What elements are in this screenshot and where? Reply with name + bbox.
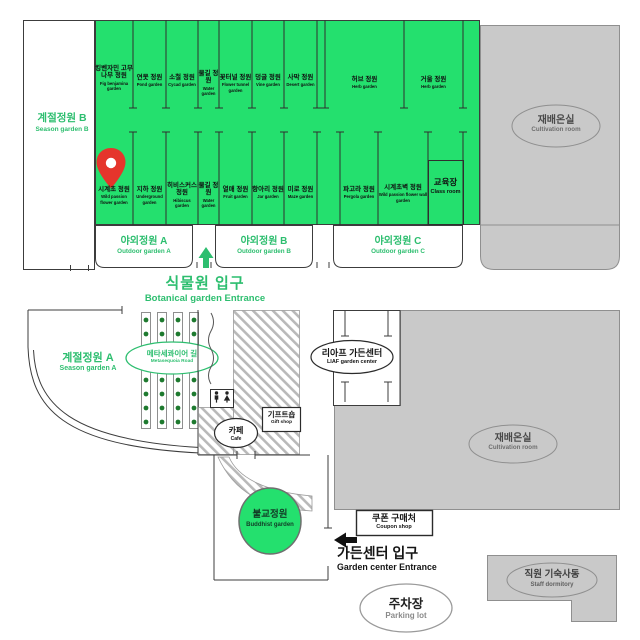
outdoor-garden-a-label: 야외정원 A Outdoor garden A (95, 236, 193, 255)
garden-cell-ko: 연못 정원 (133, 74, 166, 81)
outdoor-garden-b-label: 야외정원 B Outdoor garden B (215, 236, 313, 255)
tree-dot (144, 406, 149, 411)
garden-cell-label: 미로 정원Maze garden (284, 186, 317, 200)
garden-center-entrance-en: Garden center Entrance (337, 563, 487, 573)
garden-cell-label: 허브 정원Herb garden (325, 76, 404, 90)
tree-dot (160, 318, 165, 323)
garden-cell-label: 소철 정원Cycad garden (166, 74, 198, 88)
garden-cell-label: 파고라 정원Pergola garden (340, 186, 378, 200)
staff-dormitory-ko: 직원 기숙사동 (507, 570, 597, 581)
season-garden-a-label: 계절정원 A Season garden A (38, 352, 138, 373)
season-garden-b-ko: 계절정원 B (25, 113, 99, 125)
tree-dot (192, 406, 197, 411)
buddhist-garden-ko: 불교정원 (239, 510, 301, 521)
cultivation-room-mid-ko: 재배온실 (453, 433, 573, 444)
garden-center-entrance-ko: 가든센터 입구 (337, 546, 487, 562)
tree-dot (192, 318, 197, 323)
garden-cell-en: Class room (428, 189, 463, 196)
botanical-garden-entrance-label: 식물원 입구 Botanical garden Entrance (105, 276, 305, 304)
garden-cell-ko: 거울 정원 (404, 76, 463, 83)
garden-cell-ko: 열매 정원 (219, 186, 252, 193)
botanical-garden-entrance-en: Botanical garden Entrance (105, 294, 305, 305)
season-garden-a-ko: 계절정원 A (38, 352, 138, 364)
garden-cell-en: Pergola garden (340, 194, 378, 199)
tree-dot (192, 392, 197, 397)
tree-dot (176, 406, 181, 411)
garden-cell-label: 항아리 정원Jar garden (252, 186, 284, 200)
outdoor-garden-c-en: Outdoor garden C (333, 248, 463, 255)
garden-cell-ko: 허브 정원 (325, 76, 404, 83)
coupon-shop-ko: 쿠폰 구매처 (356, 513, 432, 523)
tree-dot (192, 420, 197, 425)
outdoor-garden-b-en: Outdoor garden B (215, 248, 313, 255)
garden-cell-ko: 미로 정원 (284, 186, 317, 193)
garden-cell-label: 물길 정원Water garden (198, 70, 219, 96)
metasequoia-road-en: Metasequoia Road (126, 359, 218, 364)
garden-center-entrance-label: 가든센터 입구 Garden center Entrance (337, 546, 487, 573)
tree-dot (160, 332, 165, 337)
garden-cell-ko: 소철 정원 (166, 74, 198, 81)
outdoor-garden-a-ko: 야외정원 A (95, 236, 193, 247)
garden-cell-en: Flower tunnel garden (219, 82, 252, 93)
garden-cell-en: Wild passion flower garden (95, 194, 133, 205)
outdoor-garden-c-ko: 야외정원 C (333, 236, 463, 247)
garden-cell-en: Cycad garden (166, 82, 198, 87)
garden-cell-en: Water garden (198, 198, 219, 209)
tree-dot (144, 378, 149, 383)
garden-cell-label: 히비스커스 정원Hibiscus garden (166, 182, 198, 208)
garden-cell-label: 교육장Class room (428, 178, 463, 196)
staff-dormitory-building (488, 556, 617, 622)
garden-cell-ko: 물길 정원 (198, 182, 219, 197)
liaf-garden-center-label: 리아프 가든센터 LIAF garden center (312, 348, 392, 365)
garden-cell-label: 연못 정원Pond garden (133, 74, 166, 88)
garden-cell-ko: 히비스커스 정원 (166, 182, 198, 197)
map-drawing-layer (0, 0, 640, 640)
coupon-shop-label: 쿠폰 구매처 Coupon shop (356, 513, 432, 530)
garden-cell-ko: 시계초벽 정원 (378, 184, 428, 191)
tree-dot (176, 392, 181, 397)
garden-cell-label: 사막 정원Desert garden (284, 74, 317, 88)
garden-cell-label: 덩굴 정원Vine garden (252, 74, 284, 88)
garden-cell-en: Fruit garden (219, 194, 252, 199)
staff-dormitory-label: 직원 기숙사동 Staff dormitory (507, 570, 597, 588)
metasequoia-road-label: 메타세콰이어 길 Metasequoia Road (126, 350, 218, 365)
garden-cell-en: Vine garden (252, 82, 284, 87)
cultivation-room-top-label: 재배온실 Cultivation room (506, 115, 606, 134)
garden-cell-label: 시계초 정원Wild passion flower garden (95, 186, 133, 205)
season-garden-a-en: Season garden A (38, 365, 138, 373)
gift-shop-label: 기프트숍 Gift shop (262, 411, 301, 426)
season-garden-a-walls (28, 306, 122, 347)
garden-cell-ko: 시계초 정원 (95, 186, 133, 193)
coupon-shop-en: Coupon shop (356, 524, 432, 530)
cultivation-room-top-building (481, 26, 620, 270)
gift-shop-en: Gift shop (262, 420, 301, 425)
cafe-en: Cafe (214, 437, 258, 443)
garden-cell-en: Underground garden (133, 194, 166, 205)
garden-cell-label: 거울 정원Herb garden (404, 76, 463, 90)
garden-cell-en: Jar garden (252, 194, 284, 199)
liaf-garden-center-ko: 리아프 가든센터 (312, 348, 392, 358)
metasequoia-road-ko: 메타세콰이어 길 (126, 350, 218, 358)
season-garden-b-en: Season garden B (25, 126, 99, 133)
parking-lot-label: 주차장 Parking lot (361, 597, 451, 621)
garden-cell-ko: 교육장 (428, 178, 463, 188)
buddhist-garden-en: Buddhist garden (239, 522, 301, 529)
cafe-ko: 카페 (214, 427, 258, 436)
season-garden-b-area (24, 21, 95, 270)
cultivation-room-mid-en: Cultivation room (453, 445, 573, 452)
garden-cell-label: 지하 정원Underground garden (133, 186, 166, 205)
garden-cell-label: 열매 정원Fruit garden (219, 186, 252, 200)
tree-dot (192, 332, 197, 337)
garden-cell-en: Herb garden (404, 84, 463, 89)
garden-cell-ko: 꽃터널 정원 (219, 74, 252, 81)
parking-lot-en: Parking lot (361, 612, 451, 621)
cultivation-room-top-ko: 재배온실 (506, 115, 606, 126)
garden-cell-ko: 지하 정원 (133, 186, 166, 193)
garden-cell-en: Water garden (198, 86, 219, 97)
garden-cell-label: 꽃터널 정원Flower tunnel garden (219, 74, 252, 93)
garden-cell-label: 물길 정원Water garden (198, 182, 219, 208)
tree-dot (160, 406, 165, 411)
outdoor-garden-c-label: 야외정원 C Outdoor garden C (333, 236, 463, 255)
tree-dot (160, 420, 165, 425)
buddhist-garden-label: 불교정원 Buddhist garden (239, 510, 301, 528)
garden-cell-en: Herb garden (325, 84, 404, 89)
tree-dot (176, 332, 181, 337)
tree-dot (144, 420, 149, 425)
tree-dot (176, 318, 181, 323)
tree-dot (192, 378, 197, 383)
liaf-garden-center-en: LIAF garden center (312, 359, 392, 365)
garden-cell-ko: 사막 정원 (284, 74, 317, 81)
garden-cell-ko: 파고라 정원 (340, 186, 378, 193)
garden-cell-ko: 물길 정원 (198, 70, 219, 85)
garden-cell-en: Fig benjamina garden (95, 81, 133, 92)
outdoor-garden-b-ko: 야외정원 B (215, 236, 313, 247)
tree-dot (160, 378, 165, 383)
cultivation-room-mid-label: 재배온실 Cultivation room (453, 433, 573, 452)
tree-dot (144, 318, 149, 323)
parking-lot-ko: 주차장 (361, 597, 451, 611)
outdoor-garden-a-en: Outdoor garden A (95, 248, 193, 255)
gift-shop-ko: 기프트숍 (262, 411, 301, 419)
garden-cell-ko: 항아리 정원 (252, 186, 284, 193)
cultivation-room-top-en: Cultivation room (506, 127, 606, 134)
garden-cell-ko: 덩굴 정원 (252, 74, 284, 81)
garden-cell-label: 킹벤자민 고무나무 정원Fig benjamina garden (95, 65, 133, 91)
garden-cell-en: Pond garden (133, 82, 166, 87)
tree-dot (144, 392, 149, 397)
tree-dot (176, 378, 181, 383)
season-garden-b-label: 계절정원 B Season garden B (25, 113, 99, 133)
garden-cell-ko: 킹벤자민 고무나무 정원 (95, 65, 133, 80)
tree-dot (144, 332, 149, 337)
restroom-box (211, 390, 234, 408)
tree-dot (176, 420, 181, 425)
garden-cell-en: Maze garden (284, 194, 317, 199)
tree-dot (160, 392, 165, 397)
garden-cell-en: Desert garden (284, 82, 317, 87)
garden-cell-label: 시계초벽 정원Wild passion flower wall garden (378, 184, 428, 203)
botanical-garden-map: 계절정원 B Season garden B 재배온실 Cultivation … (0, 0, 640, 640)
garden-cell-en: Wild passion flower wall garden (378, 192, 428, 203)
staff-dormitory-en: Staff dormitory (507, 582, 597, 589)
botanical-garden-entrance-ko: 식물원 입구 (105, 276, 305, 293)
garden-cell-en: Hibiscus garden (166, 198, 198, 209)
cafe-label: 카페 Cafe (214, 427, 258, 443)
